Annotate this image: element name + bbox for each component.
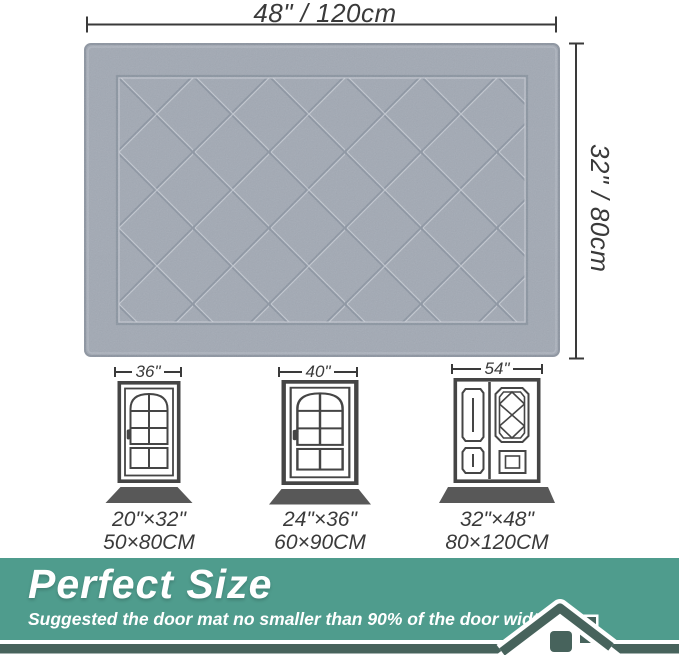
door2-width-dimension: 40" (278, 364, 358, 380)
door1-single-door-icon (103, 381, 195, 505)
dim-tick (180, 367, 182, 377)
dim-line (280, 371, 302, 373)
dim-line (334, 371, 356, 373)
door3-mat-icon (439, 487, 555, 503)
door1-width-dimension: 36" (114, 364, 182, 380)
door1-mat-icon (106, 487, 193, 503)
door1-mat-size: 20"×32" 50×80CM (84, 508, 214, 554)
product-size-infographic: 48" / 120cm (0, 0, 679, 655)
dim-line (453, 368, 481, 370)
door3-mat-size-cm: 80×120CM (432, 531, 562, 554)
door2-mat-size: 24"×36" 60×90CM (255, 508, 385, 554)
dim-line (513, 368, 541, 370)
door2-mat-size-cm: 60×90CM (255, 531, 385, 554)
mat-height-label: 32" / 80cm (587, 133, 613, 283)
dim-tick (541, 364, 543, 374)
house-roof-icon (0, 593, 679, 655)
dim-line (164, 371, 180, 373)
door1-mat-size-cm: 50×80CM (84, 531, 214, 554)
door2-mat-size-inches: 24"×36" (255, 508, 385, 531)
dim-line (116, 371, 132, 373)
door2-width-label: 40" (302, 364, 335, 380)
door1-mat-size-inches: 20"×32" (84, 508, 214, 531)
door2-mat-icon (269, 489, 371, 505)
door1-width-label: 36" (132, 364, 165, 380)
door2-single-door-icon (268, 380, 372, 506)
mat-width-dimension-line (0, 0, 679, 40)
door3-width-dimension: 54" (451, 361, 543, 377)
door3-mat-size-inches: 32"×48" (432, 508, 562, 531)
dim-tick (356, 367, 358, 377)
door-mat-illustration (84, 43, 560, 357)
door3-double-door-icon (438, 377, 556, 505)
house-door-icon (550, 631, 572, 652)
door3-width-label: 54" (481, 361, 514, 377)
door3-mat-size: 32"×48" 80×120CM (432, 508, 562, 554)
